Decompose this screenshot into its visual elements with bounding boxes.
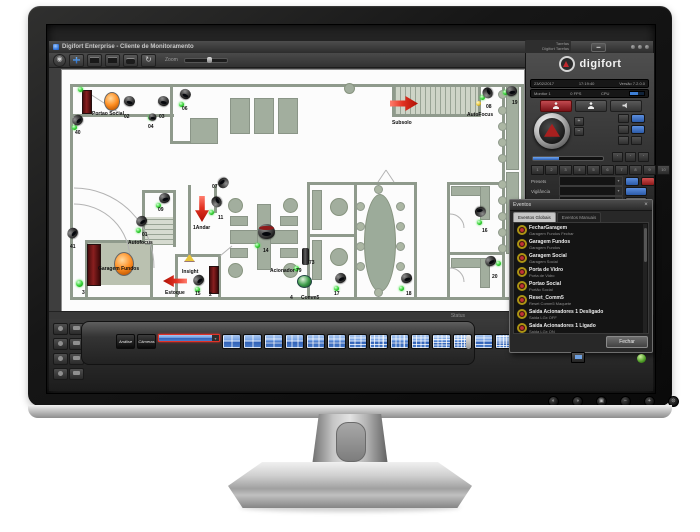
event-trigger-icon [517, 225, 527, 235]
map-label: 18 [406, 291, 412, 297]
layout-thumbnail[interactable] [285, 334, 304, 349]
preset-number-buttons: 12345678910 [531, 165, 670, 175]
layout-thumbnail[interactable] [369, 334, 388, 349]
event-name: Saida Acionadores 1 Desligado [529, 307, 648, 315]
screen: Digifort Enterprise - Cliente de Monitor… [46, 24, 656, 394]
chair [498, 228, 507, 237]
event-name: Saida Acionadores 1 Ligado [529, 321, 648, 329]
event-item[interactable]: Garagem SocialGaragem Social [514, 251, 648, 265]
status-dot [78, 87, 83, 92]
layout-thumbnail[interactable] [306, 334, 325, 349]
zoom-slider-thumb[interactable] [207, 57, 212, 63]
camera-icon[interactable] [258, 224, 275, 239]
desk [278, 98, 298, 134]
chair [498, 212, 507, 221]
fechar-button[interactable]: Fechar [606, 336, 648, 348]
monitor-stand-base [228, 462, 472, 508]
event-trigger-icon [517, 323, 527, 333]
preset-button[interactable]: 9 [643, 165, 656, 175]
snapshot-button[interactable] [53, 353, 68, 365]
ptz-home-button[interactable] [618, 136, 629, 145]
monitor-view-icon[interactable] [87, 54, 102, 67]
vigilancia-label: Vigilância [531, 189, 557, 194]
preset-button[interactable]: 6 [601, 165, 614, 175]
camera-icon[interactable] [333, 271, 347, 285]
actuator-icon[interactable] [302, 248, 309, 265]
event-desc: Portão Social [529, 287, 648, 292]
brand-row: digifort [526, 56, 654, 72]
camera-list-button[interactable] [53, 323, 68, 335]
chair [396, 222, 405, 231]
layout-strip: AnáliseCâmeras [81, 321, 475, 365]
status-dot [476, 101, 481, 106]
event-desc: Garagem Social [529, 259, 648, 264]
desk [451, 258, 481, 268]
map-label: 03 [159, 114, 165, 120]
desk [312, 190, 322, 230]
chair [498, 244, 507, 253]
event-trigger-icon [517, 281, 527, 291]
chair [498, 154, 507, 163]
wall [502, 84, 505, 300]
map-label: Estoque [165, 290, 185, 296]
app-icon [53, 44, 59, 50]
event-desc: Saida LGx ON [529, 329, 648, 334]
map-label: 40 [75, 130, 81, 136]
event-desc: Garagem Fundos Fechar [529, 231, 648, 236]
layout-thumbnail[interactable] [432, 334, 451, 349]
time-value: 17:19:40 [579, 81, 595, 86]
monitor-stand-neck [312, 414, 388, 466]
chair [356, 242, 365, 251]
maximize-button[interactable] [638, 45, 642, 49]
map-label: 19 [512, 100, 518, 106]
map-label: 01 [142, 232, 148, 238]
map-label: Acionador [270, 268, 295, 274]
event-item[interactable]: Porta de VidroPorta de Vidro [514, 265, 648, 279]
io-module-icon[interactable] [297, 275, 312, 288]
wall [150, 240, 153, 297]
window-title: Digifort Enterprise - Cliente de Monitor… [62, 44, 194, 50]
playback-button[interactable] [53, 368, 68, 380]
chair [498, 180, 507, 189]
vigilancia-start-button[interactable] [625, 187, 647, 196]
view-thumbnail[interactable]: Câmeras [137, 334, 156, 349]
layout-thumbnail[interactable] [474, 334, 493, 349]
map-label: Portao Social [92, 111, 124, 117]
tasks-tab[interactable]: Tarefas Digifort Tarefas [525, 40, 571, 53]
wall [414, 182, 417, 297]
map-label: 06 [182, 106, 188, 112]
layout-thumbnail[interactable] [222, 334, 241, 349]
map-label: 02 [124, 114, 130, 120]
chair [374, 185, 383, 194]
monitor-label: Monitor 1 [534, 91, 551, 96]
event-name: Portao Social [529, 279, 648, 287]
round-table [283, 198, 298, 213]
presets-select[interactable] [559, 176, 623, 186]
event-desc: Saida LGx OFF [529, 315, 648, 320]
wall [447, 182, 502, 185]
wall [142, 190, 173, 193]
wall [70, 297, 522, 300]
camera-icon[interactable] [65, 226, 80, 241]
event-trigger-icon [517, 267, 527, 277]
minimize-button[interactable] [631, 45, 635, 49]
camera-icon[interactable] [209, 195, 223, 210]
desk [230, 216, 248, 226]
ptz-go-button-1[interactable] [631, 114, 645, 123]
round-table [330, 198, 348, 216]
add-object-icon[interactable] [69, 54, 84, 67]
status-dot [76, 280, 83, 287]
ptz-joystick[interactable] [534, 113, 570, 149]
fps-value: 0 FPS [570, 91, 581, 96]
ptz-control-row-1 [618, 114, 645, 123]
preset-go-button[interactable] [625, 177, 639, 186]
map-label: 16 [482, 228, 488, 234]
ptz-control-row-2 [618, 125, 645, 134]
wall [175, 254, 221, 257]
layout-thumbnails: AnáliseCâmeras [116, 334, 514, 349]
camera-icon[interactable] [123, 95, 136, 108]
round-table [330, 248, 348, 266]
events-title: Eventos [513, 202, 531, 208]
monitor-info-bar: Monitor 1 0 FPS CPU [530, 89, 649, 98]
camera-icon[interactable] [216, 176, 231, 191]
event-item[interactable]: FecharGaragemGaragem Fundos Fechar [514, 223, 648, 237]
tasks-tab-line2: Digifort Tarefas [527, 46, 569, 51]
wall [354, 182, 357, 297]
event-name: Porta de Vidro [529, 265, 648, 273]
map-label: Autofocus [128, 240, 153, 246]
ptz-speed-slider[interactable] [532, 156, 604, 161]
map-label: Insight [182, 269, 198, 275]
desk [230, 98, 250, 134]
map-label: AutoFocus [467, 112, 493, 118]
desk [190, 118, 218, 144]
vigilancia-row: Vigilância [531, 186, 647, 196]
ptz-direction-icon [544, 124, 560, 137]
events-list[interactable]: FecharGaragemGaragem Fundos FecharGarage… [513, 222, 649, 334]
map-label: 17 [334, 291, 340, 297]
tab-audio[interactable] [610, 100, 642, 112]
presets-row: Presets [531, 176, 655, 186]
map-label: 07 [212, 184, 218, 190]
status-dot [209, 210, 214, 215]
wall [447, 182, 450, 297]
event-trigger-icon [517, 239, 527, 249]
event-trigger-icon [517, 253, 527, 263]
chair [356, 262, 365, 271]
preset-button[interactable]: 2 [545, 165, 558, 175]
strip-scrollbar[interactable] [466, 335, 471, 349]
map-label: Subsolo [392, 120, 412, 126]
chair [498, 196, 507, 205]
desk [451, 186, 481, 196]
record-icon[interactable]: ◉ [53, 54, 66, 67]
layout-thumbnail[interactable] [264, 334, 283, 349]
event-name: Garagem Fundos [529, 237, 648, 245]
tab-single-user[interactable] [540, 100, 572, 112]
events-scrollbar[interactable] [643, 224, 647, 334]
map-label: 11 [218, 215, 223, 221]
events-popup-titlebar[interactable]: Eventos × [510, 200, 652, 211]
map-label: 1Andar [193, 225, 210, 231]
quick-buttons [53, 323, 82, 380]
preset-button[interactable]: 3 [559, 165, 572, 175]
view-thumbnail[interactable]: Análise [116, 334, 135, 349]
event-desc: Reset Comm5 Maquete [529, 301, 648, 306]
camera-icon[interactable] [149, 113, 157, 120]
event-desc: Garagem Fundos [529, 245, 648, 250]
print-button[interactable] [53, 338, 68, 350]
map-label: 20 [492, 274, 498, 280]
monitor-bezel: Digifort Enterprise - Cliente de Monitor… [28, 6, 672, 406]
status-dot [477, 220, 482, 225]
camera-icon[interactable] [158, 192, 171, 205]
light-icon[interactable] [104, 92, 120, 111]
camera-icon[interactable] [157, 95, 170, 107]
desk [280, 248, 298, 258]
status-dot [399, 286, 404, 291]
map-label: Garagem Fundos [98, 266, 139, 272]
map-label: 2 [209, 292, 212, 298]
map-label: 14 [263, 248, 269, 254]
ptz-option-button-1[interactable] [618, 114, 629, 123]
magnifier-icon[interactable]: · [625, 152, 636, 162]
ptz-control-row-3 [618, 136, 642, 145]
wall [307, 182, 417, 185]
titlebar-pin-button[interactable]: ▬ [591, 43, 606, 52]
event-name: FecharGaragem [529, 223, 648, 231]
chair [396, 262, 405, 271]
event-item[interactable]: Saida Acionadores 1 DesligadoSaida LGx O… [514, 307, 648, 321]
ptz-option-button-2[interactable] [618, 125, 629, 134]
event-item[interactable]: Portao SocialPortão Social [514, 279, 648, 293]
wall [188, 185, 191, 254]
event-name: Reset_Comm5 [529, 293, 648, 301]
cpu-meter [629, 91, 645, 96]
digifort-logo-icon [559, 56, 575, 72]
ptz-go-button-2[interactable] [631, 125, 645, 134]
chair [374, 288, 383, 297]
version-value: Versão 7.2.0.0 [619, 81, 645, 86]
chair [356, 222, 365, 231]
cpu-label: CPU [601, 91, 609, 96]
wall [307, 234, 354, 237]
event-trigger-icon [517, 295, 527, 305]
round-table [228, 198, 243, 213]
map-label: 41 [70, 244, 76, 250]
preset-button[interactable]: 4 [573, 165, 586, 175]
date-value: 23/02/2017 [534, 81, 554, 86]
light-icon[interactable] [114, 252, 134, 276]
layout-thumbnail[interactable] [390, 334, 409, 349]
window-controls [631, 45, 649, 49]
camera-icon[interactable] [178, 87, 192, 101]
door [87, 244, 101, 286]
preset-button[interactable]: 5 [587, 165, 600, 175]
filter-button[interactable] [69, 368, 84, 380]
preset-button[interactable]: 7 [615, 165, 628, 175]
event-item[interactable]: Garagem FundosGaragem Fundos [514, 237, 648, 251]
desk [280, 216, 298, 226]
virtual-matrix-tray-icon[interactable] [571, 352, 585, 363]
arrow-down-icon [195, 196, 209, 222]
map-label: 79 [296, 268, 302, 274]
lock-icon[interactable]: · [638, 152, 649, 162]
wall [173, 190, 176, 247]
status-dot [255, 243, 260, 248]
close-button[interactable] [645, 45, 649, 49]
map-label: 4 [290, 295, 293, 301]
layout-thumbnail[interactable] [243, 334, 262, 349]
layout-thumbnail[interactable] [158, 334, 220, 342]
event-desc: Porta de Vidro [529, 273, 648, 278]
desk [230, 248, 248, 258]
ptz-zoom-in-button[interactable]: + [574, 117, 584, 126]
round-table [228, 263, 243, 278]
floorplan-map[interactable]: Portao Social0240030406SubsoloAutoFocus0… [61, 69, 525, 313]
preset-del-button[interactable] [641, 177, 655, 186]
status-dot [496, 261, 501, 266]
vigilancia-select[interactable] [559, 186, 623, 196]
camera-view-icon[interactable] [123, 54, 138, 67]
zoom-slider[interactable] [184, 58, 228, 63]
user-icon[interactable]: · [612, 152, 623, 162]
ptz-tools: · · · [612, 152, 649, 162]
map-label: 73 [309, 260, 315, 266]
round-table [344, 83, 355, 94]
layout-thumbnail[interactable] [327, 334, 346, 349]
door [82, 90, 92, 114]
event-item[interactable]: Saida Acionadores 1 LigadoSaida LGx ON [514, 321, 648, 334]
tab-multi-user[interactable] [575, 100, 607, 112]
brand-name: digifort [580, 58, 622, 70]
map-label: 04 [148, 124, 154, 130]
datetime-bar: 23/02/2017 17:19:40 Versão 7.2.0.0 [530, 79, 649, 88]
desk [506, 86, 519, 170]
ptz-focus-button[interactable] [631, 136, 642, 145]
ptz-zoom-out-button[interactable]: − [574, 127, 584, 136]
events-popup: Eventos × Eventos Globais Eventos Manuai… [509, 199, 653, 353]
map-label: 09 [158, 207, 164, 213]
desk [254, 98, 274, 134]
fullscreen-icon[interactable] [105, 54, 120, 67]
refresh-icon[interactable]: ↻ [141, 54, 156, 67]
chair [396, 202, 405, 211]
person-icon [552, 102, 560, 109]
chair [356, 202, 365, 211]
chair [498, 106, 507, 115]
layout-thumbnail[interactable] [411, 334, 430, 349]
map-label: Comm5 [301, 295, 319, 301]
map-label: 3 [82, 290, 85, 296]
events-close-icon[interactable]: × [642, 201, 650, 209]
event-trigger-icon [517, 309, 527, 319]
map-label: 08 [486, 104, 492, 110]
conference-table [364, 194, 396, 292]
chair [396, 242, 405, 251]
chair [498, 122, 507, 131]
wall [447, 252, 502, 255]
map-label: 15 [195, 291, 201, 297]
preset-button[interactable]: 10 [657, 165, 670, 175]
panel-mode-tabs [540, 100, 642, 112]
people-icon [587, 102, 595, 109]
wall [170, 84, 173, 144]
event-item[interactable]: Reset_Comm5Reset Comm5 Maquete [514, 293, 648, 307]
preset-button[interactable]: 8 [629, 165, 642, 175]
presets-label: Presets [531, 179, 557, 184]
door [209, 266, 219, 294]
speaker-icon [623, 103, 630, 109]
status-tray-icon[interactable] [637, 354, 646, 363]
event-name: Garagem Social [529, 251, 648, 259]
chair [498, 138, 507, 147]
zoom-label: Zoom [165, 57, 178, 63]
status-dot [136, 228, 141, 233]
layout-thumbnail[interactable] [348, 334, 367, 349]
preset-button[interactable]: 1 [531, 165, 544, 175]
camera-icon[interactable] [400, 272, 413, 285]
